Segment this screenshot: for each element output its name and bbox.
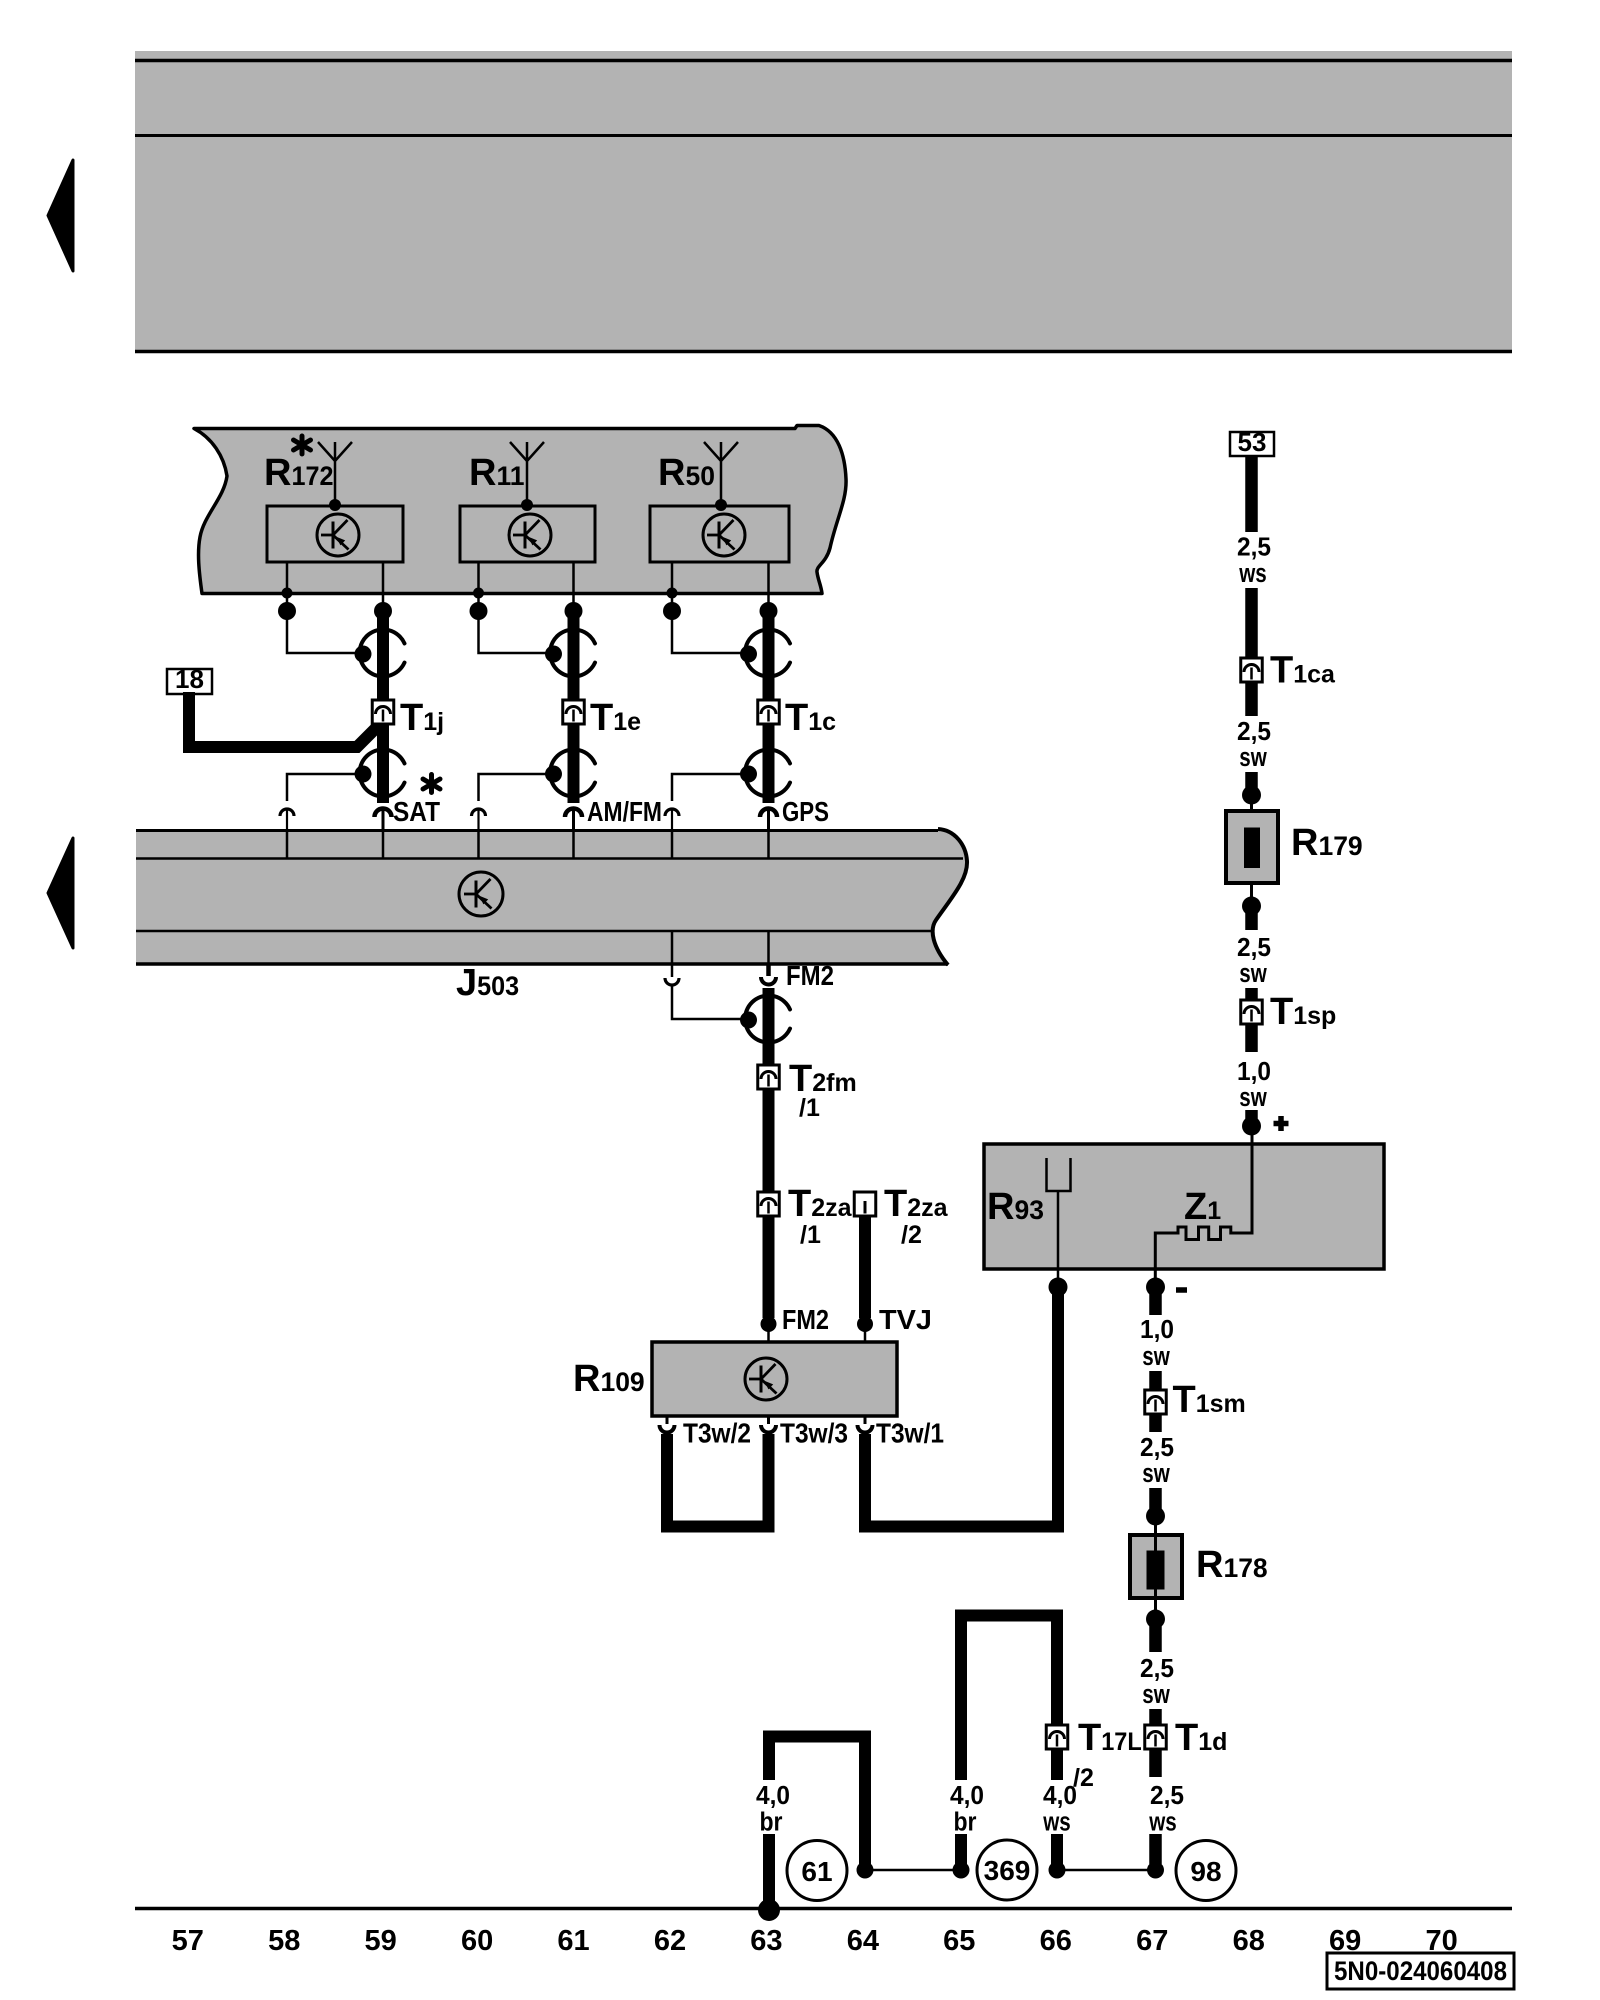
svg-text:/1: /1 [800,1221,821,1249]
svg-text:T17L: T17L [1078,1717,1142,1759]
svg-text:4,0: 4,0 [756,1782,790,1810]
svg-text:T1c: T1c [785,697,836,739]
svg-text:66: 66 [1040,1925,1072,1957]
svg-text:SAT: SAT [393,796,440,827]
svg-text:98: 98 [1190,1856,1221,1887]
svg-text:T1j: T1j [400,697,444,739]
svg-text:2,5: 2,5 [1237,934,1271,962]
svg-text:4,0: 4,0 [1043,1782,1077,1810]
svg-text:R179: R179 [1291,822,1363,864]
svg-text:T3w/1: T3w/1 [876,1418,944,1449]
svg-text:T1ca: T1ca [1270,650,1336,692]
svg-text:J503: J503 [456,962,519,1004]
svg-text:T1d: T1d [1175,1717,1227,1759]
svg-text:FM2: FM2 [786,960,834,991]
svg-text:br: br [760,1809,783,1837]
svg-text:58: 58 [268,1925,300,1957]
svg-text:2,5: 2,5 [1150,1782,1184,1810]
svg-text:sw: sw [1142,1681,1170,1709]
svg-text:sw: sw [1239,1084,1267,1112]
svg-text:67: 67 [1136,1925,1168,1957]
svg-text:53: 53 [1238,427,1267,457]
svg-text:18: 18 [175,664,204,694]
svg-text:T3w/3: T3w/3 [780,1418,848,1449]
svg-text:T3w/2: T3w/2 [683,1418,751,1449]
svg-text:T1sm: T1sm [1173,1379,1246,1421]
svg-text:sw: sw [1142,1460,1170,1488]
svg-text:sw: sw [1239,960,1267,988]
svg-text:57: 57 [172,1925,204,1957]
svg-text:2,5: 2,5 [1140,1655,1174,1683]
svg-text:63: 63 [750,1925,782,1957]
svg-text:R178: R178 [1196,1544,1268,1586]
svg-text:1,0: 1,0 [1237,1058,1271,1086]
svg-text:GPS: GPS [782,796,829,827]
svg-text:5N0-024060408: 5N0-024060408 [1334,1956,1507,1986]
svg-text:T1sp: T1sp [1270,991,1336,1033]
svg-text:2,5: 2,5 [1140,1434,1174,1462]
svg-text:2,5: 2,5 [1237,718,1271,746]
svg-text:2,5: 2,5 [1237,534,1271,562]
svg-text:59: 59 [364,1925,396,1957]
svg-text:T2za: T2za [884,1183,949,1225]
svg-text:61: 61 [557,1925,589,1957]
svg-text:1,0: 1,0 [1140,1316,1174,1344]
svg-text:64: 64 [847,1925,879,1957]
svg-text:61: 61 [801,1856,832,1887]
svg-text:R109: R109 [573,1358,645,1400]
svg-text:FM2: FM2 [782,1304,829,1335]
svg-text:62: 62 [654,1925,686,1957]
svg-text:/1: /1 [799,1094,820,1122]
svg-text:sw: sw [1239,744,1267,772]
svg-text:sw: sw [1142,1343,1170,1371]
svg-text:4,0: 4,0 [950,1782,984,1810]
svg-text:br: br [954,1809,977,1837]
svg-text:68: 68 [1233,1925,1265,1957]
svg-text:T2za: T2za [788,1183,853,1225]
svg-text:65: 65 [943,1925,975,1957]
svg-text:TVJ: TVJ [879,1304,932,1335]
svg-text:ws: ws [1238,560,1266,588]
svg-text:AM/FM: AM/FM [587,796,662,827]
svg-text:60: 60 [461,1925,493,1957]
svg-text:ws: ws [1042,1809,1070,1837]
svg-text:ws: ws [1148,1809,1176,1837]
svg-text:T1e: T1e [590,697,641,739]
svg-text:369: 369 [984,1855,1031,1886]
svg-text:/2: /2 [901,1221,922,1249]
